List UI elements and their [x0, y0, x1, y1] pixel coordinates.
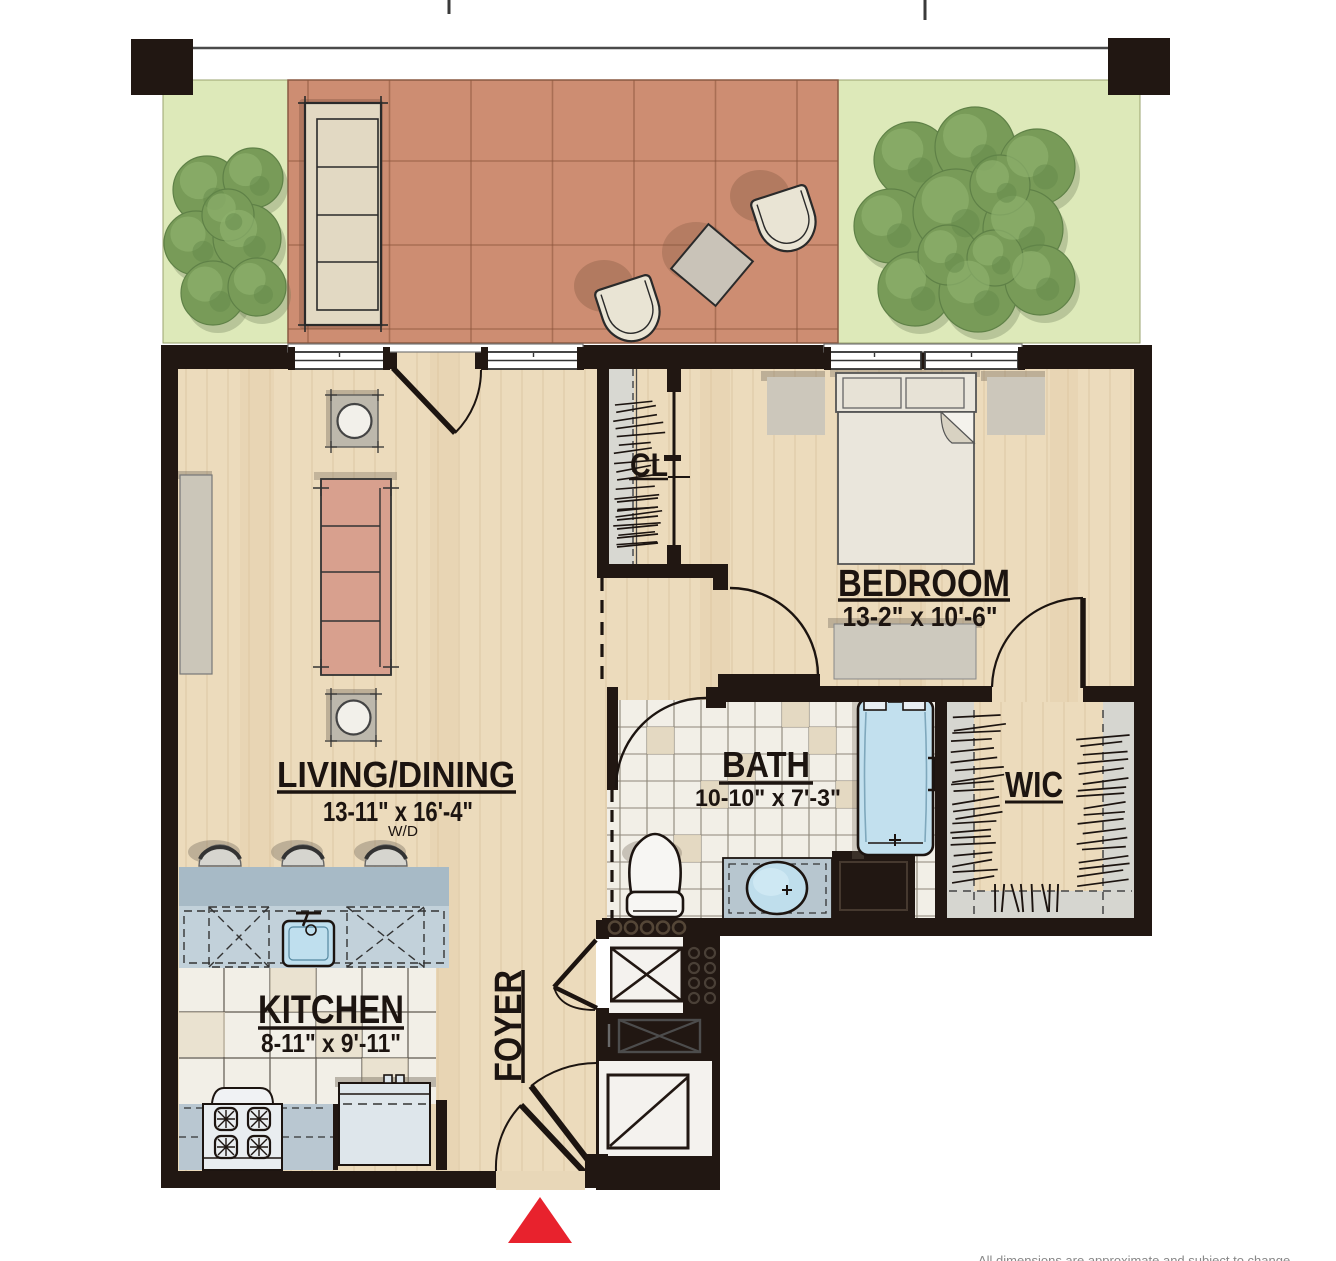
svg-text:W/D: W/D: [388, 823, 418, 840]
svg-text:13-2" x 10'-6": 13-2" x 10'-6": [843, 601, 998, 632]
svg-text:CL: CL: [630, 447, 668, 483]
svg-text:LIVING/DINING: LIVING/DINING: [277, 754, 515, 795]
svg-text:WIC: WIC: [1005, 764, 1063, 805]
svg-text:BATH: BATH: [722, 744, 810, 785]
svg-text:8-11" x 9'-11": 8-11" x 9'-11": [261, 1028, 401, 1058]
svg-text:10-10" x 7'-3": 10-10" x 7'-3": [695, 785, 841, 812]
svg-text:All dimensions are approximate: All dimensions are approximate and subje…: [978, 1253, 1290, 1261]
svg-text:KITCHEN: KITCHEN: [258, 988, 404, 1032]
